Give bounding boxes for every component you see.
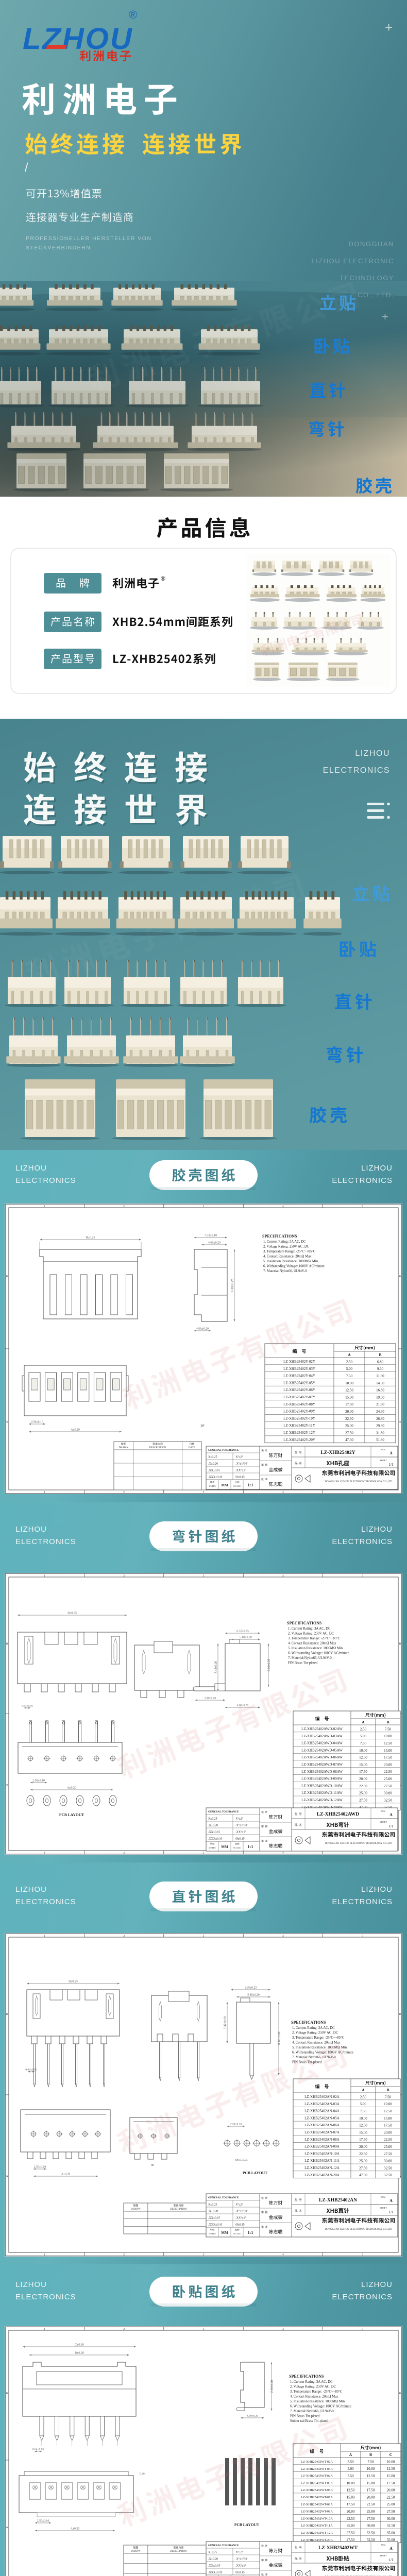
svg-text:5: 5 <box>362 1852 363 1855</box>
svg-text:1/1: 1/1 <box>389 2558 394 2562</box>
svg-text:3: 3 <box>203 2253 205 2257</box>
svg-text:LZ-XHB25402AN-08A: LZ-XHB25402AN-08A <box>304 2138 340 2142</box>
svg-text:25.00: 25.00 <box>384 2145 392 2149</box>
svg-text:6.35±0.25: 6.35±0.25 <box>236 1630 249 1633</box>
svg-text:A: A <box>399 1420 401 1423</box>
svg-text:.XX°±1°: .XX°±1° <box>235 1831 246 1834</box>
svg-text:3: 3 <box>203 2328 205 2331</box>
svg-text:15.00: 15.00 <box>387 2474 395 2478</box>
svg-text:10.00: 10.00 <box>345 1381 353 1385</box>
svg-text:7.50: 7.50 <box>347 2474 354 2478</box>
svg-text:LZ-XHB25402WT: LZ-XHB25402WT <box>318 2546 358 2551</box>
svg-text:LIZHOU: LIZHOU <box>15 1885 47 1894</box>
svg-text:12.50: 12.50 <box>359 2124 367 2128</box>
svg-text:X°±2°: X°±2° <box>235 2551 244 2554</box>
svg-text:6.10±0.25: 6.10±0.25 <box>268 1659 271 1671</box>
svg-text:10.00: 10.00 <box>384 1734 392 1738</box>
svg-text:B±0.25: B±0.25 <box>67 1612 77 1615</box>
svg-text:5.00: 5.00 <box>360 1734 367 1738</box>
svg-text:SCALE: SCALE <box>233 1485 241 1487</box>
svg-text:.XXX±0.10: .XXX±0.10 <box>208 2224 222 2227</box>
svg-text:LZ-XHB25402WT-07A: LZ-XHB25402WT-07A <box>301 2496 333 2499</box>
svg-text:25.00: 25.00 <box>347 2524 355 2528</box>
svg-text:2.50±0.10: 2.50±0.10 <box>32 1780 45 1783</box>
svg-text:15.00: 15.00 <box>367 2481 375 2485</box>
svg-text:10.00: 10.00 <box>359 1749 367 1753</box>
svg-text:15.00: 15.00 <box>359 2130 367 2134</box>
svg-text:.XX°±1°: .XX°±1° <box>235 2216 246 2220</box>
svg-text:3. Temperature Range: -25°C~+8: 3. Temperature Range: -25°C~+85°C <box>263 1250 316 1253</box>
svg-text:B: B <box>399 2013 401 2016</box>
svg-text:22.50: 22.50 <box>384 2138 392 2142</box>
svg-text:Ø±0.15: Ø±0.15 <box>235 1838 245 1841</box>
svg-text:5.80±0.20: 5.80±0.20 <box>247 1994 260 1997</box>
svg-text:LZ-XHB25402WT-08A: LZ-XHB25402WT-08A <box>301 2503 333 2506</box>
svg-text:51.80: 51.80 <box>376 1438 384 1442</box>
svg-text:LZ-XHB25402AWD-09AW: LZ-XHB25402AWD-09AW <box>301 1777 343 1781</box>
svg-text:LZ-XHB25402Y-04Y: LZ-XHB25402Y-04Y <box>283 1374 315 1378</box>
svg-text:DRAWN: DRAWN <box>131 2550 141 2553</box>
svg-text:Ø±0.15: Ø±0.15 <box>235 2224 245 2227</box>
svg-text:LZ-XHB25402Y-06Y: LZ-XHB25402Y-06Y <box>283 1388 315 1392</box>
svg-text:6. Withstanding Voltage: 1000V: 6. Withstanding Voltage: 1000V AC/minute <box>263 1265 325 1268</box>
svg-text:A±0.20: A±0.20 <box>71 1429 80 1432</box>
svg-text:LZ-XHB25402Y-10Y: LZ-XHB25402Y-10Y <box>283 1416 315 1420</box>
svg-text:27.50: 27.50 <box>359 1798 367 1802</box>
svg-text:6. Withstanding Voltage: 1000V: 6. Withstanding Voltage: 1000V AC/minute <box>288 1652 349 1655</box>
svg-text:REV.: REV. <box>381 2544 386 2546</box>
svg-text:.X±0.20: .X±0.20 <box>208 2210 218 2213</box>
svg-text:3: 3 <box>203 1852 205 1855</box>
svg-text:1: 1 <box>44 1574 45 1578</box>
svg-text:4.60±0.20: 4.60±0.20 <box>208 1242 221 1245</box>
svg-text:17.50: 17.50 <box>345 1402 353 1406</box>
svg-text:26.80: 26.80 <box>376 1417 384 1421</box>
svg-text:.X±0.20: .X±0.20 <box>208 2558 218 2561</box>
svg-text:UNITS: UNITS <box>209 1846 216 1849</box>
svg-text:2.50±0.10: 2.50±0.10 <box>230 2123 242 2126</box>
svg-text:.XX±0.15: .XX±0.15 <box>208 2217 220 2220</box>
svg-text:32.50: 32.50 <box>384 2166 392 2170</box>
svg-text:LZ-XHB25402AWD-10AW: LZ-XHB25402AWD-10AW <box>301 1784 343 1788</box>
svg-text:DONGGUAN LIZHOU ELECTRONIC TEC: DONGGUAN LIZHOU ELECTRONIC TECHNOLOGY CO… <box>325 1481 393 1483</box>
svg-text:1. Current Rating: 3A AC, DC: 1. Current Rating: 3A AC, DC <box>292 2026 335 2030</box>
svg-text:32.50: 32.50 <box>384 1798 392 1802</box>
svg-text:10.00: 10.00 <box>387 2460 395 2464</box>
svg-text:17.50: 17.50 <box>347 2502 355 2506</box>
svg-text:2. Voltage Rating: 250V AC, DC: 2. Voltage Rating: 250V AC, DC <box>290 2385 336 2389</box>
svg-text:27.50: 27.50 <box>387 2510 395 2514</box>
svg-text:6.80: 6.80 <box>377 1360 384 1364</box>
svg-text:2.50: 2.50 <box>360 1727 367 1731</box>
svg-text:LZ-XHB25402AWD-12AW: LZ-XHB25402AWD-12AW <box>301 1798 343 1802</box>
svg-text:2P: 2P <box>200 1424 205 1428</box>
svg-text:ELECTRONICS: ELECTRONICS <box>332 1176 393 1185</box>
svg-text:2.50: 2.50 <box>347 2460 354 2464</box>
svg-text:20.00: 20.00 <box>387 2488 395 2493</box>
svg-text:5. Insulation Resistance: 1000: 5. Insulation Resistance: 1000MΩ Min <box>290 2400 345 2403</box>
svg-text:LZ-XHB25402Y-07Y: LZ-XHB25402Y-07Y <box>283 1395 315 1399</box>
svg-text:2: 2 <box>123 1574 125 1578</box>
svg-text:47.50: 47.50 <box>345 1438 353 1442</box>
svg-text:4.00±0.20: 4.00±0.20 <box>196 1328 209 1331</box>
svg-text:20.00: 20.00 <box>384 1762 392 1767</box>
svg-text:ELECTRONICS: ELECTRONICS <box>15 2293 76 2301</box>
svg-text:15.00: 15.00 <box>359 1762 367 1767</box>
svg-text:PIN Brass Tin-plated: PIN Brass Tin-plated <box>288 1662 318 1665</box>
svg-text:20.00: 20.00 <box>384 2130 392 2134</box>
svg-text:10.00: 10.00 <box>359 2116 367 2121</box>
svg-text:LZ-XHB25402WT-11A: LZ-XHB25402WT-11A <box>301 2524 333 2528</box>
svg-text:.X°±1°30': .X°±1°30' <box>235 1824 247 1827</box>
svg-text:22.50: 22.50 <box>359 1784 367 1788</box>
svg-text:.XX±0.15: .XX±0.15 <box>208 2565 220 2568</box>
svg-text:ELECTRONICS: ELECTRONICS <box>15 1897 76 1906</box>
svg-text:17.50: 17.50 <box>359 2138 367 2142</box>
svg-text:2. Voltage Rating: 250V AC, DC: 2. Voltage Rating: 250V AC, DC <box>292 2031 338 2035</box>
svg-text:3. Temperature Range: -25°C~+8: 3. Temperature Range: -25°C~+85°C <box>292 2036 345 2040</box>
svg-text:A: A <box>389 2198 393 2203</box>
svg-text:A: A <box>389 2546 393 2551</box>
svg-text:GENERAL TOLERANCE: GENERAL TOLERANCE <box>208 2196 239 2199</box>
svg-text:SPECIFICATIONS: SPECIFICATIONS <box>262 1234 297 1239</box>
svg-text:LZ-XHB25402AN-10A: LZ-XHB25402AN-10A <box>304 2151 340 2156</box>
svg-text:STECKVERBINDERN: STECKVERBINDERN <box>26 245 91 251</box>
svg-text:5.00: 5.00 <box>347 2467 354 2471</box>
svg-text:LZ-XHB25402AWD-11AW: LZ-XHB25402AWD-11AW <box>301 1791 343 1795</box>
svg-text:LIZHOU: LIZHOU <box>355 749 390 758</box>
svg-text:A: A <box>6 1420 8 1423</box>
svg-text:2.50: 2.50 <box>346 1360 353 1364</box>
svg-text:7.50: 7.50 <box>385 1727 392 1731</box>
svg-text:B: B <box>6 2013 8 2016</box>
svg-text:4: 4 <box>282 1574 284 1578</box>
svg-text:3: 3 <box>203 1491 205 1494</box>
svg-text:2: 2 <box>123 1491 125 1494</box>
svg-text:LZ-XHB25402AWD: LZ-XHB25402AWD <box>317 1812 359 1817</box>
svg-text:3: 3 <box>203 1574 205 1578</box>
svg-text:31.80: 31.80 <box>376 1431 384 1435</box>
svg-text:X±0.25: X±0.25 <box>208 1818 217 1821</box>
svg-text:25.00: 25.00 <box>359 2159 367 2163</box>
svg-text:Ø±0.15: Ø±0.15 <box>235 1476 245 1479</box>
svg-text:1:1: 1:1 <box>248 1483 253 1487</box>
svg-text:LZ-XHB25402AWD-04AW: LZ-XHB25402AWD-04AW <box>301 1741 343 1745</box>
svg-text:4: 4 <box>282 1205 284 1208</box>
svg-text:17.50: 17.50 <box>359 1770 367 1774</box>
svg-text:2: 2 <box>123 1935 125 1938</box>
svg-text:DESCRIPTION: DESCRIPTION <box>170 2208 187 2211</box>
svg-text:14.30: 14.30 <box>376 1381 384 1385</box>
svg-text:52.50: 52.50 <box>384 2173 392 2177</box>
svg-text:20.00: 20.00 <box>345 1410 353 1414</box>
svg-text:LZ-XHB25402Y: LZ-XHB25402Y <box>320 1450 355 1455</box>
svg-text:0.64±0.05: 0.64±0.05 <box>22 1705 33 1708</box>
svg-text:11.80: 11.80 <box>376 1374 384 1378</box>
svg-text:GENERAL TOLERANCE: GENERAL TOLERANCE <box>208 1449 239 1452</box>
svg-text:12.50: 12.50 <box>387 2467 395 2471</box>
svg-text:MM: MM <box>221 2231 228 2235</box>
svg-text:12.50: 12.50 <box>345 1388 353 1393</box>
svg-text:2.50±0.10: 2.50±0.10 <box>34 2166 46 2169</box>
svg-text:LIZHOU: LIZHOU <box>15 2280 47 2289</box>
svg-text:B±0.20: B±0.20 <box>75 2352 84 2355</box>
svg-text:3. Temperature Range: -25°C~+8: 3. Temperature Range: -25°C~+85°C <box>288 1637 341 1640</box>
svg-text:LZ-XHB25402AWD-07AW: LZ-XHB25402AWD-07AW <box>301 1762 343 1767</box>
svg-text:7.50: 7.50 <box>346 1374 353 1378</box>
svg-text:25.00: 25.00 <box>387 2502 395 2506</box>
svg-text:LZ-XHB25402AN-09A: LZ-XHB25402AN-09A <box>304 2145 340 2149</box>
svg-text:30.00: 30.00 <box>367 2524 375 2528</box>
svg-text:.XXX±0.10: .XXX±0.10 <box>208 1838 222 1841</box>
svg-text:LZ-XHB25402WT-02A: LZ-XHB25402WT-02A <box>301 2460 333 2464</box>
svg-text:A: A <box>389 1451 393 1455</box>
svg-text:2.50: 2.50 <box>360 2095 367 2099</box>
svg-text:®: ® <box>129 8 137 21</box>
svg-text:B: B <box>399 1275 401 1278</box>
svg-text:22.50: 22.50 <box>387 2495 395 2499</box>
svg-text:B±0.25: B±0.25 <box>86 1236 95 1240</box>
svg-text:LZ-XHB25402AWD-06AW: LZ-XHB25402AWD-06AW <box>301 1755 343 1759</box>
svg-text:ELECTRONICS: ELECTRONICS <box>332 1537 393 1546</box>
svg-text:.XX±0.15: .XX±0.15 <box>208 1831 220 1834</box>
svg-text:2: 2 <box>123 2253 125 2257</box>
svg-text:3: 3 <box>203 1205 205 1208</box>
svg-text:A: A <box>348 1352 351 1357</box>
svg-text:5.00: 5.00 <box>346 1367 353 1371</box>
svg-text:12.50: 12.50 <box>367 2474 375 2478</box>
svg-text:B: B <box>6 2392 8 2395</box>
svg-text:7. Material:Nylon66, UL94V-0: 7. Material:Nylon66, UL94V-0 <box>288 1656 332 1660</box>
svg-text:X°±2°: X°±2° <box>235 1817 244 1821</box>
svg-text:LZ-XHB25402Y-05Y: LZ-XHB25402Y-05Y <box>283 1381 315 1385</box>
svg-text:3. Temperature Range: -25°C~+8: 3. Temperature Range: -25°C~+85°C <box>290 2390 343 2394</box>
svg-text:2.50±0.10: 2.50±0.10 <box>31 1421 43 1424</box>
svg-text:LZ-XHB25402AWD-08AW: LZ-XHB25402AWD-08AW <box>301 1770 343 1774</box>
svg-text:5: 5 <box>362 1935 363 1938</box>
svg-text:LZ-XHB25402WT-10A: LZ-XHB25402WT-10A <box>301 2517 333 2520</box>
svg-text:5. Insulation Resistance: 1000: 5. Insulation Resistance: 1000MΩ Min <box>288 1647 343 1650</box>
svg-text:LIZHOU: LIZHOU <box>361 1885 393 1894</box>
svg-text:C±0.30: C±0.30 <box>75 2344 84 2347</box>
svg-text:25.00: 25.00 <box>367 2510 375 2514</box>
svg-text:ELECTRONICS: ELECTRONICS <box>15 1176 76 1185</box>
svg-text:LZ-XHB25402Y-03Y: LZ-XHB25402Y-03Y <box>283 1367 315 1371</box>
svg-text:DRAWN: DRAWN <box>131 2208 141 2211</box>
svg-text:LZ-XHB25402WT-05A: LZ-XHB25402WT-05A <box>301 2481 333 2485</box>
svg-text:DONGGUAN LIZHOU ELECTRONIC TEC: DONGGUAN LIZHOU ELECTRONIC TECHNOLOGY CO… <box>325 2228 393 2231</box>
svg-text:LZ-XHB25402Y-09Y: LZ-XHB25402Y-09Y <box>283 1410 315 1414</box>
svg-text:1/1: 1/1 <box>389 2210 394 2214</box>
svg-text:A: A <box>349 2452 352 2457</box>
svg-text:22.50: 22.50 <box>345 1417 353 1421</box>
svg-text:REV.: REV. <box>381 1448 386 1451</box>
svg-text:LIZHOU: LIZHOU <box>361 2280 393 2289</box>
svg-text:SHEET: SHEET <box>380 2207 387 2209</box>
svg-text:22.50: 22.50 <box>384 1770 392 1774</box>
svg-text:LZ-XHB25402AN-05A: LZ-XHB25402AN-05A <box>304 2116 340 2120</box>
svg-text:35.00: 35.00 <box>387 2531 395 2535</box>
svg-text:LIZHOU: LIZHOU <box>361 1525 393 1534</box>
svg-text:A±0.20: A±0.20 <box>71 2528 80 2531</box>
svg-text:32.50: 32.50 <box>387 2524 395 2528</box>
svg-text:LZ-XHB25402AN-04A: LZ-XHB25402AN-04A <box>304 2109 340 2113</box>
svg-text:3: 3 <box>203 1935 205 1938</box>
svg-text:20.00: 20.00 <box>359 2145 367 2149</box>
svg-text:B: B <box>379 1352 381 1357</box>
svg-text:Ø±0.15: Ø±0.15 <box>235 2571 245 2574</box>
svg-text:MM: MM <box>221 1483 228 1487</box>
svg-text:27.50: 27.50 <box>345 1431 353 1435</box>
svg-text:X°±2°: X°±2° <box>235 2203 244 2207</box>
svg-text:®: ® <box>161 575 165 582</box>
svg-text:1: 1 <box>44 1852 45 1855</box>
svg-text:LZ-XHB25402Y-12Y: LZ-XHB25402Y-12Y <box>283 1431 315 1435</box>
svg-text:GENERAL TOLERANCE: GENERAL TOLERANCE <box>208 1810 239 1814</box>
svg-text:Ø0.9±0.05: Ø0.9±0.05 <box>235 2159 248 2162</box>
svg-text:7.50: 7.50 <box>367 2460 374 2464</box>
svg-text:PIN Brass Tin-plated: PIN Brass Tin-plated <box>290 2415 320 2418</box>
svg-text:20.00: 20.00 <box>347 2510 355 2514</box>
svg-text:9.30: 9.30 <box>377 1367 384 1371</box>
svg-text:7. Material:Nylon66, UL94V-0: 7. Material:Nylon66, UL94V-0 <box>290 2410 334 2413</box>
svg-text:5.00: 5.00 <box>360 2102 367 2106</box>
svg-text:0.40: 0.40 <box>140 2472 145 2476</box>
svg-text:SCALE: SCALE <box>233 2232 241 2235</box>
svg-text:LZ-XHB25402WT-03A: LZ-XHB25402WT-03A <box>301 2467 333 2471</box>
svg-text:1: 1 <box>44 1205 45 1208</box>
svg-text:LZ-XHB25402AWD-02AW: LZ-XHB25402AWD-02AW <box>301 1727 343 1731</box>
svg-text:4. Contact Resistance: 20mΩ Ma: 4. Contact Resistance: 20mΩ Max <box>263 1255 312 1259</box>
svg-text:SCALE: SCALE <box>233 1846 241 1849</box>
svg-text:25.00: 25.00 <box>345 1424 353 1428</box>
svg-text:10.00: 10.00 <box>384 2102 392 2106</box>
svg-text:20.00: 20.00 <box>359 1777 367 1781</box>
svg-text:LZ-XHB25402Y-20Y: LZ-XHB25402Y-20Y <box>283 1438 315 1442</box>
svg-text:30.00: 30.00 <box>387 2517 395 2521</box>
svg-text:12.50: 12.50 <box>384 2109 392 2113</box>
svg-text:5: 5 <box>362 1574 363 1578</box>
svg-text:4: 4 <box>282 2253 284 2257</box>
svg-text:LZ-XHB25402Y-02Y: LZ-XHB25402Y-02Y <box>283 1360 315 1364</box>
svg-text:A±0.20: A±0.20 <box>67 1787 76 1790</box>
svg-text:12.50: 12.50 <box>359 1756 367 1760</box>
svg-text:7.33±0.10: 7.33±0.10 <box>205 1234 217 1238</box>
svg-text:15.00: 15.00 <box>347 2495 355 2499</box>
svg-text:A: A <box>362 2088 365 2092</box>
svg-text:C: C <box>389 2452 392 2457</box>
svg-text:1/1: 1/1 <box>389 1463 394 1467</box>
svg-text:1: 1 <box>44 2253 45 2257</box>
svg-text:.X°±1°30': .X°±1°30' <box>235 1462 247 1466</box>
svg-text:Solder tad Brass Tin-plated: Solder tad Brass Tin-plated <box>290 2419 329 2423</box>
svg-text:19.30: 19.30 <box>376 1395 384 1399</box>
svg-text:UNITS: UNITS <box>209 2232 216 2235</box>
svg-text:7.42±0.20: 7.42±0.20 <box>224 2016 227 2029</box>
svg-text:30.00: 30.00 <box>384 2159 392 2163</box>
svg-text:4.90±0.20: 4.90±0.20 <box>247 2415 259 2418</box>
svg-text:A±0.20: A±0.20 <box>61 2173 71 2176</box>
svg-text:16.80: 16.80 <box>376 1388 384 1393</box>
svg-text:0.64±0.05: 0.64±0.05 <box>32 2448 44 2451</box>
svg-text:17.50: 17.50 <box>384 1756 392 1760</box>
svg-text:22.50: 22.50 <box>347 2517 355 2521</box>
svg-text:A: A <box>6 1783 8 1786</box>
svg-text:4: 4 <box>282 1491 284 1494</box>
svg-text:DRAWN: DRAWN <box>118 1447 128 1449</box>
svg-text:15.00: 15.00 <box>384 2116 392 2121</box>
svg-text:5: 5 <box>362 2253 363 2257</box>
svg-text:+: + <box>385 20 393 35</box>
svg-text:LZ-XHB25402AN: LZ-XHB25402AN <box>319 2198 357 2203</box>
svg-text:.X°±1°30': .X°±1°30' <box>235 2210 247 2213</box>
svg-text:LZ-XHB25402AN-11A: LZ-XHB25402AN-11A <box>304 2159 339 2163</box>
svg-text:DESCRIPTION: DESCRIPTION <box>149 1447 166 1449</box>
svg-text:/: / <box>25 161 28 175</box>
svg-text:LZ-XHB25402WT-12A: LZ-XHB25402WT-12A <box>301 2531 333 2535</box>
svg-text:5: 5 <box>362 1491 363 1494</box>
svg-text:1:1: 1:1 <box>248 2230 253 2235</box>
svg-text:GENERAL TOLERANCE: GENERAL TOLERANCE <box>208 2544 239 2547</box>
svg-text:.XXX±0.10: .XXX±0.10 <box>208 2571 222 2574</box>
svg-text:7.50: 7.50 <box>385 2095 392 2099</box>
svg-text:B: B <box>6 1642 8 1646</box>
svg-text:.XX°±1°: .XX°±1° <box>235 1469 246 1472</box>
svg-text:2: 2 <box>123 2328 125 2331</box>
svg-text:.X°±1°30': .X°±1°30' <box>235 2557 247 2561</box>
svg-text:4: 4 <box>282 1935 284 1938</box>
svg-text:12.50: 12.50 <box>384 1741 392 1745</box>
svg-text:2. Voltage Rating: 250V AC, DC: 2. Voltage Rating: 250V AC, DC <box>263 1245 310 1249</box>
svg-text:B: B <box>369 2452 372 2457</box>
svg-text:6.35±0.25: 6.35±0.25 <box>245 1987 257 1990</box>
svg-text:7.30±0.25: 7.30±0.25 <box>231 1278 234 1292</box>
svg-text:A: A <box>362 1720 365 1724</box>
svg-text:A: A <box>6 2175 8 2178</box>
svg-text:27.50: 27.50 <box>384 2152 392 2156</box>
svg-text:2.50±0.10: 2.50±0.10 <box>37 2520 49 2523</box>
svg-text:.X±0.20: .X±0.20 <box>208 1824 218 1827</box>
svg-text:27.50: 27.50 <box>347 2531 355 2535</box>
svg-text:27.50: 27.50 <box>359 2166 367 2170</box>
svg-text:27.50: 27.50 <box>384 1784 392 1788</box>
svg-text:.XX°±1°: .XX°±1° <box>235 2564 246 2568</box>
svg-text:SHEET: SHEET <box>380 2554 387 2557</box>
svg-text:20.00: 20.00 <box>367 2495 375 2499</box>
svg-text:32.50: 32.50 <box>367 2531 375 2535</box>
svg-text:6. Withstanding Voltage: 1000V: 6. Withstanding Voltage: 1000V AC/minute <box>290 2405 351 2409</box>
svg-text:22.50: 22.50 <box>359 2152 367 2156</box>
svg-text:4. Contact Resistance: 20mΩ Ma: 4. Contact Resistance: 20mΩ Max <box>288 1642 336 1646</box>
svg-text:15.00: 15.00 <box>384 1749 392 1753</box>
svg-text:B: B <box>6 1275 8 1278</box>
svg-text:LZ-XHB25402Y-08Y: LZ-XHB25402Y-08Y <box>283 1402 315 1406</box>
svg-text:1: 1 <box>44 1491 45 1494</box>
svg-text:17.50: 17.50 <box>387 2481 395 2485</box>
svg-text:ELECTRONICS: ELECTRONICS <box>15 1537 76 1546</box>
svg-text:B±0.25: B±0.25 <box>69 1980 78 1984</box>
svg-text:A: A <box>6 2526 8 2529</box>
svg-text:A: A <box>389 1812 393 1817</box>
svg-text:X±0.25: X±0.25 <box>208 2204 217 2207</box>
svg-text:25.00: 25.00 <box>359 1791 367 1795</box>
svg-text:12.50: 12.50 <box>347 2488 355 2493</box>
svg-text:30.00: 30.00 <box>384 1791 392 1795</box>
svg-text:1/1: 1/1 <box>389 1824 394 1828</box>
svg-text:SPECIFICATIONS: SPECIFICATIONS <box>291 2020 326 2025</box>
svg-text:B: B <box>399 2392 401 2395</box>
svg-text:DONGGUAN: DONGGUAN <box>348 240 394 248</box>
